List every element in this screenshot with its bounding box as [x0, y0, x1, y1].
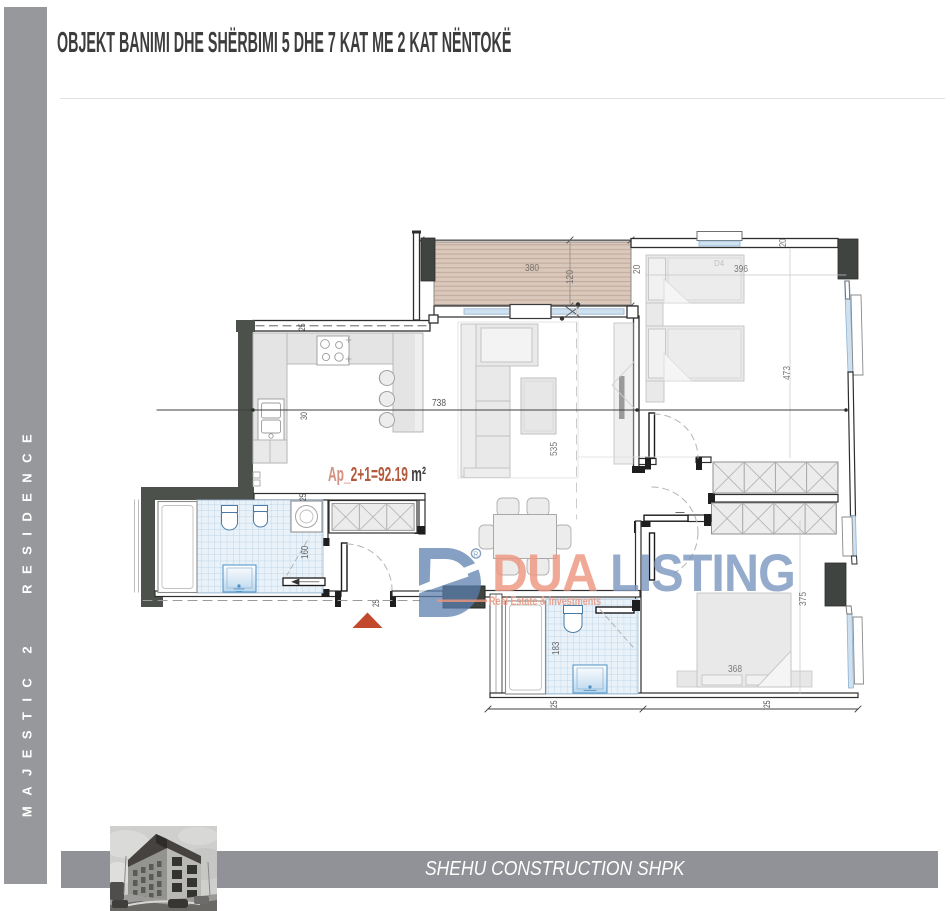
- svg-text:396: 396: [734, 263, 748, 275]
- svg-text:25: 25: [762, 700, 772, 708]
- svg-text:D4: D4: [714, 259, 725, 268]
- svg-text:Ap_2+1=92.19 m²: Ap_2+1=92.19 m²: [328, 463, 426, 486]
- svg-text:473: 473: [781, 366, 793, 380]
- svg-text:368: 368: [728, 663, 742, 675]
- svg-text:160: 160: [299, 546, 310, 559]
- svg-text:30: 30: [298, 412, 309, 420]
- svg-text:738: 738: [432, 397, 446, 409]
- svg-text:25: 25: [549, 700, 559, 708]
- svg-text:380: 380: [525, 262, 539, 274]
- svg-text:183: 183: [550, 642, 561, 655]
- svg-text:R: R: [473, 551, 478, 558]
- svg-text:20: 20: [777, 239, 788, 247]
- svg-text:25: 25: [297, 323, 307, 331]
- svg-text:25: 25: [298, 493, 308, 501]
- svg-text:535: 535: [548, 442, 560, 456]
- svg-text:20: 20: [631, 265, 643, 274]
